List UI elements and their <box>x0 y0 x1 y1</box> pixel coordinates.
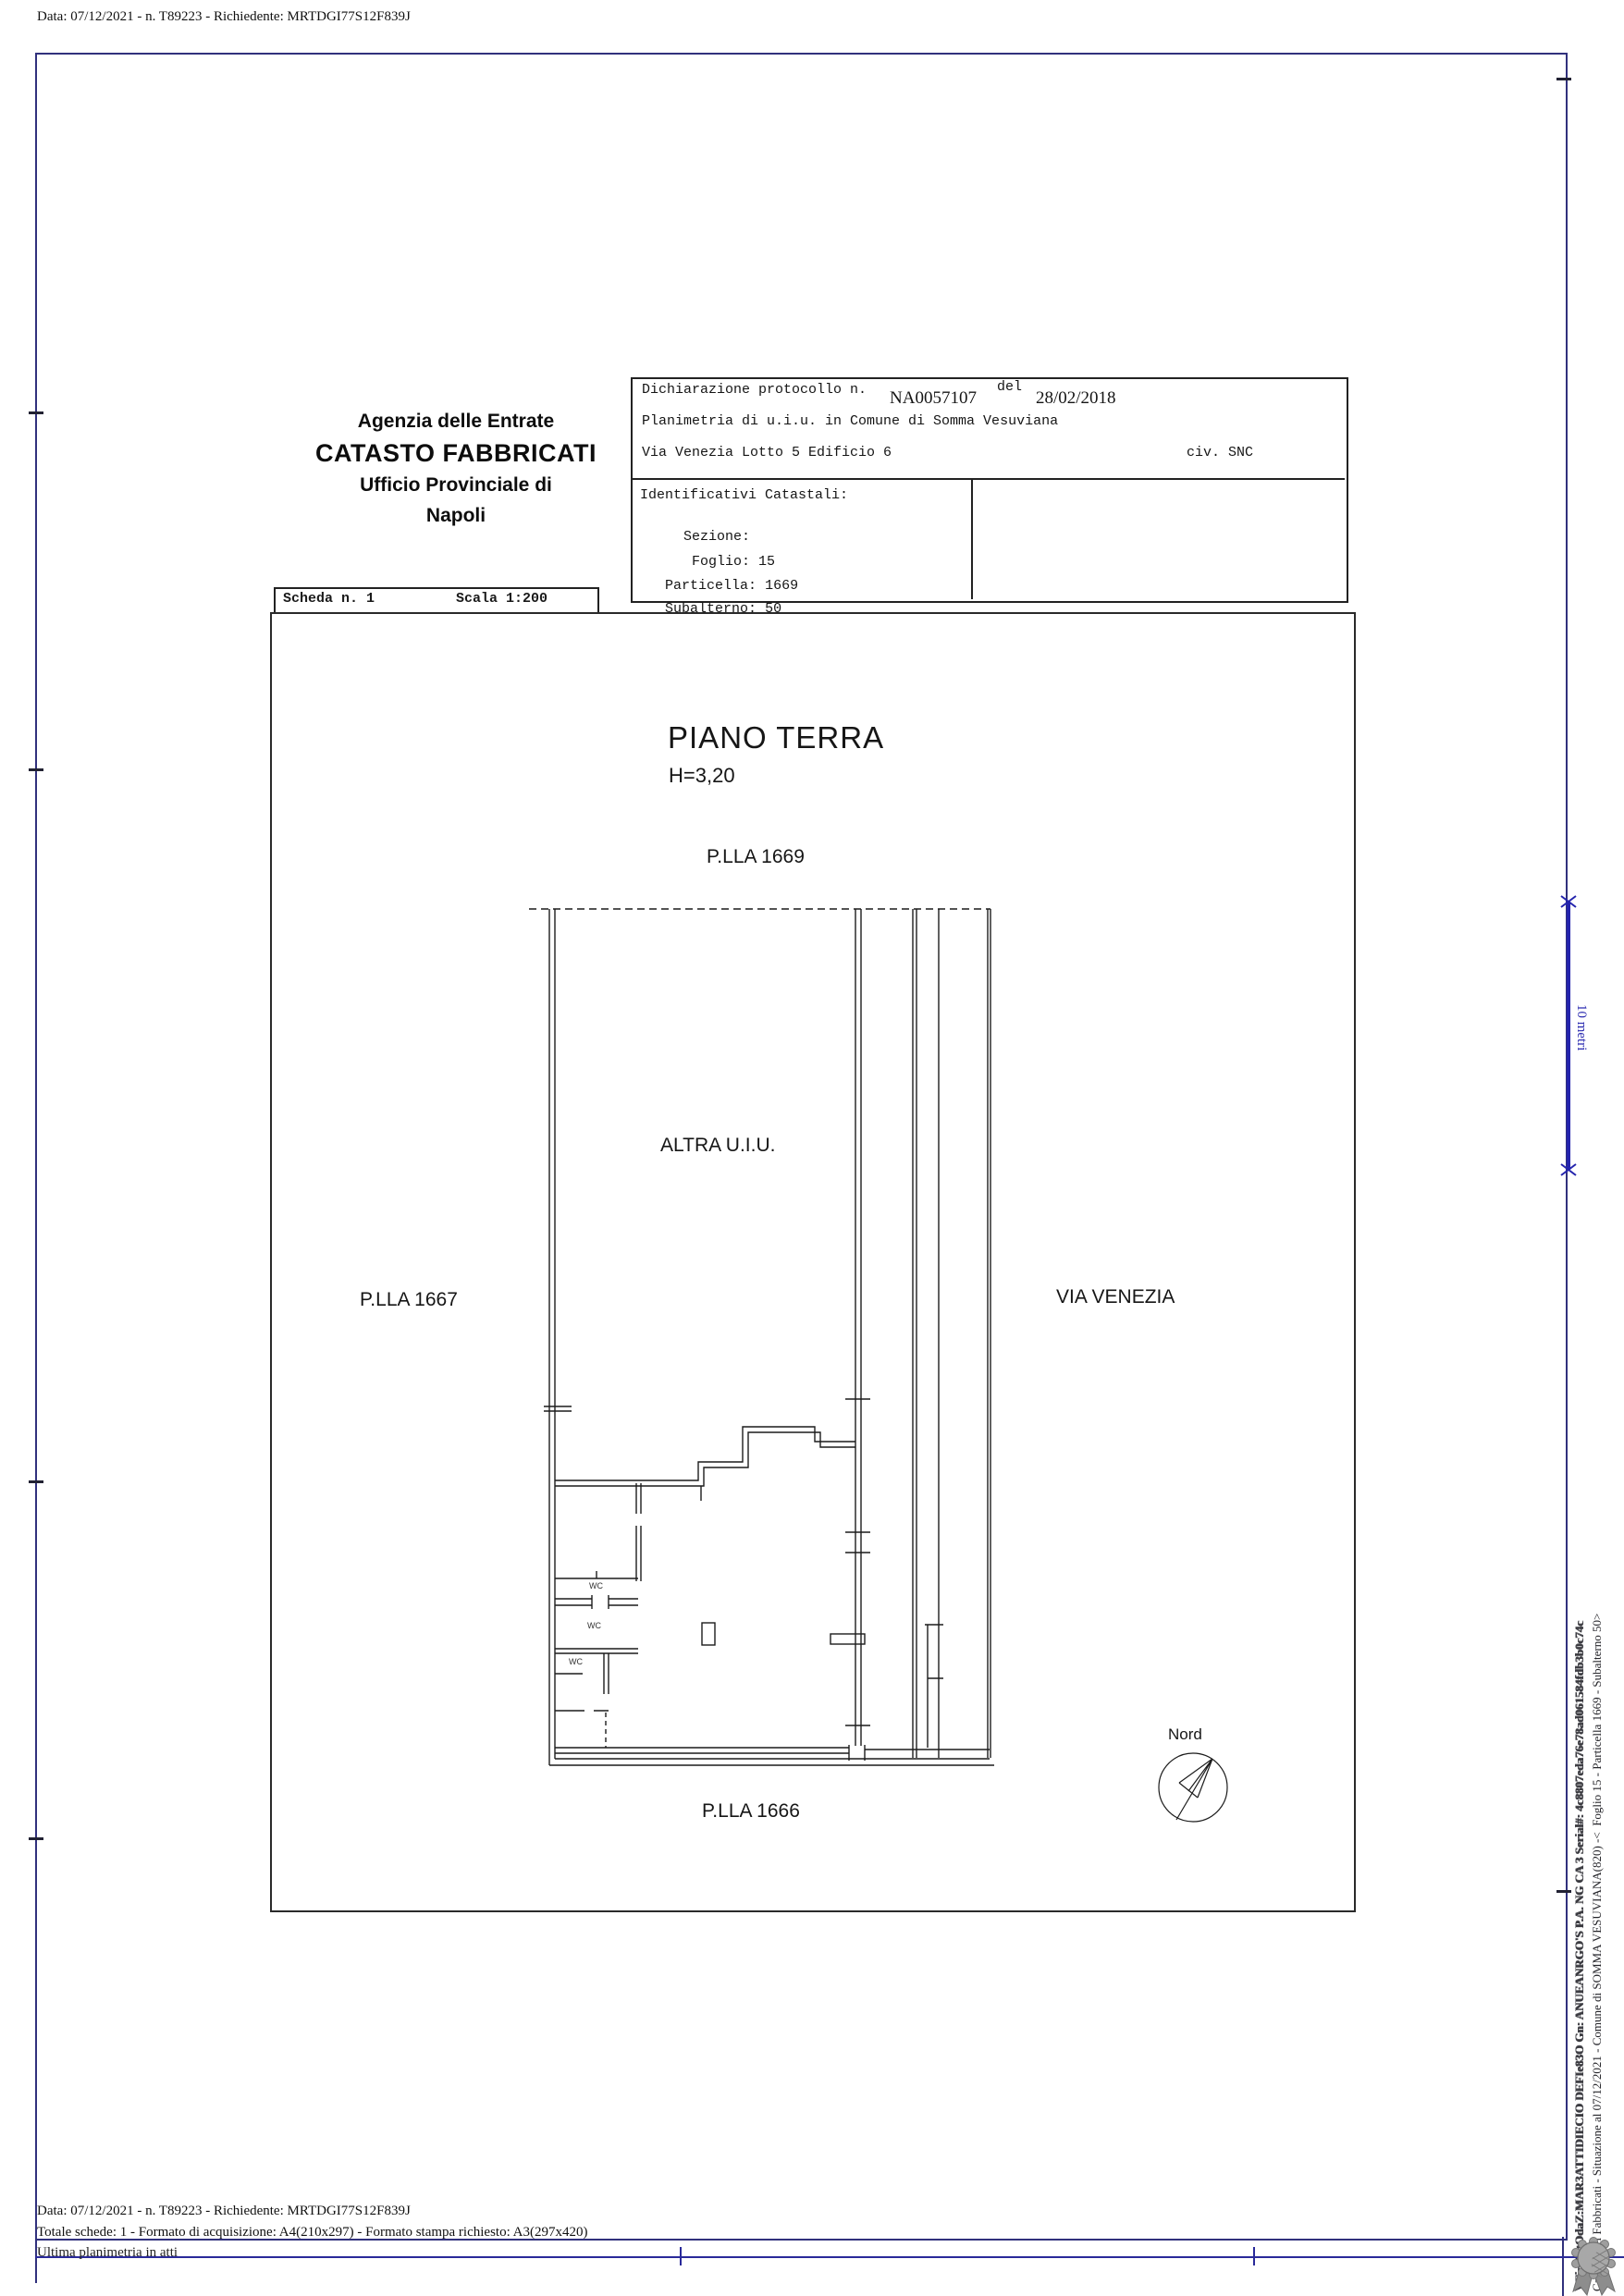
declaration-box-divider-h <box>631 478 1345 480</box>
fold-tick-right-2 <box>1556 1890 1571 1893</box>
scheda-scale: Scala 1:200 <box>456 591 547 607</box>
north-label: Nord <box>1168 1725 1202 1744</box>
declaration-box-divider-v <box>971 478 973 599</box>
agency-office: CATASTO FABBRICATI <box>312 436 600 470</box>
del-label: del <box>997 379 1022 395</box>
wc-label-1: WC <box>589 1581 603 1590</box>
fold-tick-left-1 <box>29 411 43 414</box>
plan-counter <box>830 1634 865 1644</box>
frame-right-extension <box>1562 2237 1564 2296</box>
floor-plan-drawing <box>270 612 1352 1909</box>
footer-signature-line <box>35 2256 1624 2258</box>
other-unit-label: ALTRA U.I.U. <box>660 1135 775 1157</box>
parcel-label-top: P.LLA 1669 <box>707 846 805 868</box>
planimetria-line: Planimetria di u.i.u. in Comune di Somma… <box>642 413 1058 429</box>
plan-pillar <box>702 1623 715 1645</box>
address-line: Via Venezia Lotto 5 Edificio 6 <box>642 445 892 460</box>
north-compass-icon <box>1159 1753 1227 1822</box>
fold-tick-right-1 <box>1556 78 1571 80</box>
wc-label-2: WC <box>587 1621 601 1630</box>
protocol-label: Dichiarazione protocollo n. <box>642 382 867 398</box>
agency-header: Agenzia delle Entrate CATASTO FABBRICATI… <box>312 407 600 531</box>
wc-label-3: WC <box>569 1657 583 1666</box>
footer-line-2: Totale schede: 1 - Formato di acquisizio… <box>37 2225 588 2241</box>
footer-signature-tick-1 <box>680 2247 682 2265</box>
scheda-number: Scheda n. 1 <box>283 591 375 607</box>
agency-province: Ufficio Provinciale di <box>312 470 600 500</box>
parcel-label-left: P.LLA 1667 <box>360 1289 458 1311</box>
agency-city: Napoli <box>312 500 600 531</box>
scheda-bar: Scheda n. 1 Scala 1:200 <box>274 587 599 614</box>
identifiers-title: Identificativi Catastali: <box>640 487 848 503</box>
fold-tick-left-3 <box>29 1480 43 1483</box>
digital-seal-ribbon-icon <box>1565 2236 1622 2296</box>
agency-name: Agenzia delle Entrate <box>312 407 600 436</box>
footer-signature-tick-2 <box>1253 2247 1255 2265</box>
civic-number: civ. SNC <box>1187 445 1253 460</box>
margin-vertical-text-2: VFirMatOdaZ:MAR3ATTIDIECIO DEFIe83O Gn: … <box>1572 1621 1587 2291</box>
scale-bar-label: 10 metri <box>1573 1004 1589 1050</box>
parcel-label-bottom: P.LLA 1666 <box>702 1800 800 1823</box>
top-meta-line: Data: 07/12/2021 - n. T89223 - Richieden… <box>37 9 411 25</box>
protocol-date: 28/02/2018 <box>1036 388 1116 409</box>
floor-height: H=3,20 <box>669 764 735 788</box>
footer-line-3: Ultima planimetria in atti <box>37 2245 178 2261</box>
fold-tick-left-2 <box>29 768 43 771</box>
margin-vertical-text-1: Catasto dei Fabbricati - Situazione al 0… <box>1590 1614 1605 2291</box>
floor-title: PIANO TERRA <box>668 720 884 755</box>
document-page: Data: 07/12/2021 - n. T89223 - Richieden… <box>0 0 1624 2296</box>
protocol-number: NA0057107 <box>890 388 977 409</box>
street-label-right: VIA VENEZIA <box>1056 1286 1175 1308</box>
footer-line-1: Data: 07/12/2021 - n. T89223 - Richieden… <box>37 2204 411 2219</box>
fold-tick-left-4 <box>29 1837 43 1840</box>
